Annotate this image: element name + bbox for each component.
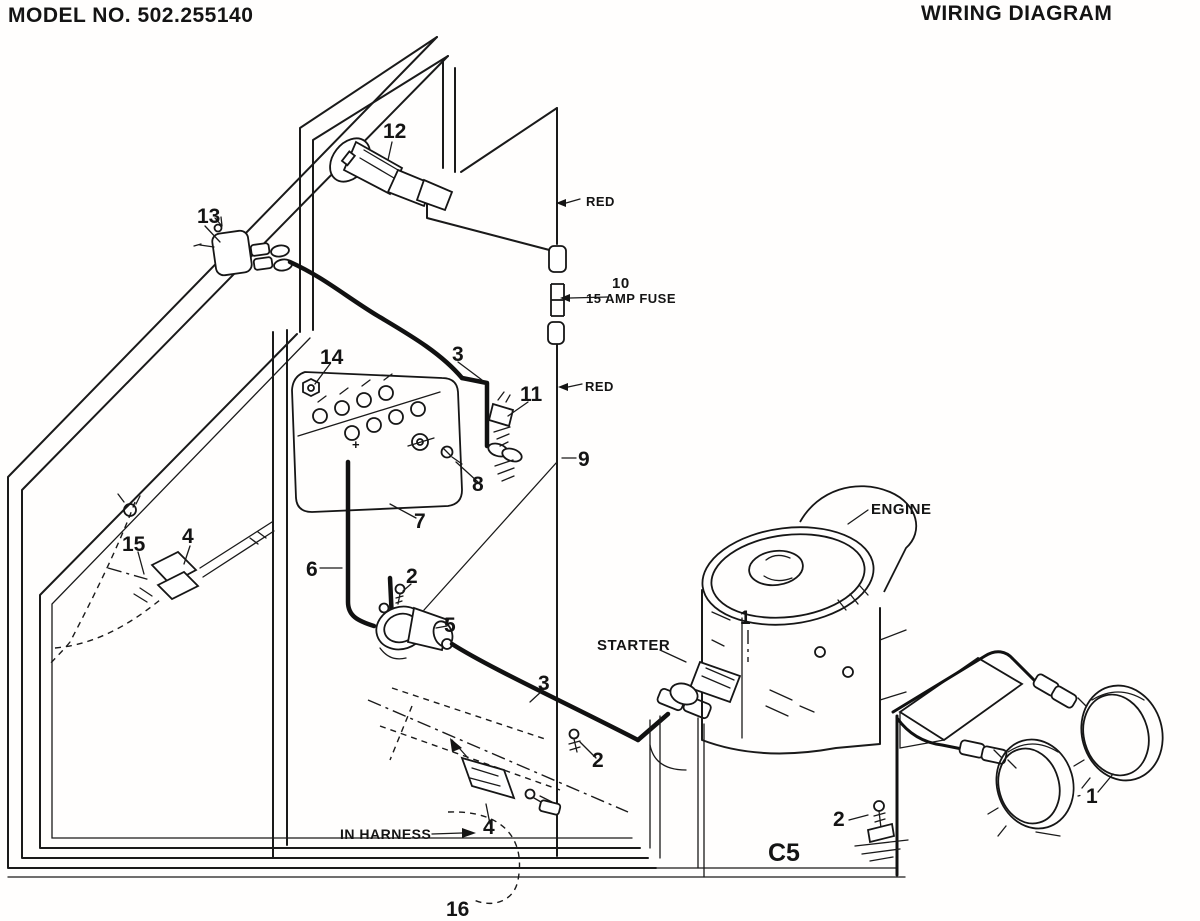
callout-4-interlock-bottom: 4: [483, 816, 495, 839]
wire-label-red-upper: RED: [586, 194, 615, 209]
solenoid: [371, 600, 456, 659]
screw-2-bottom: [569, 730, 580, 753]
callout-2-ground-screw: 2: [833, 808, 845, 831]
connector-c5-label: C5: [768, 839, 800, 867]
callout-13-light-switch: 13: [197, 205, 220, 228]
callout-12-key-switch: 12: [383, 120, 406, 143]
wiring-diagram-page: MODEL NO. 502.255140 WIRING DIAGRAM 12 1…: [0, 0, 1200, 921]
diagram-canvas: MODEL NO. 502.255140 WIRING DIAGRAM 12 1…: [0, 0, 1200, 921]
callout-3-starter-cable: 3: [538, 672, 550, 695]
callout-15-interlock: 15: [122, 533, 146, 556]
wire-label-red-lower: RED: [585, 379, 614, 394]
ground-bolt-8: [442, 447, 463, 465]
in-harness-label: IN HARNESS: [340, 826, 431, 842]
page-title: WIRING DIAGRAM: [921, 2, 1112, 25]
callout-7-battery: 7: [414, 510, 426, 533]
callout-3-battery-cable: 3: [452, 343, 464, 366]
callout-1-starter-area: 1: [740, 608, 751, 629]
screw-2-solenoid: [396, 585, 405, 605]
callout-14-nut: 14: [320, 346, 344, 369]
engine-label: ENGINE: [871, 501, 932, 518]
fuse-rating-label: 15 AMP FUSE: [586, 291, 676, 306]
callout-9-wire: 9: [578, 448, 590, 471]
ground-screw-2-right: [855, 801, 908, 861]
engine: [697, 486, 916, 753]
starter-label: STARTER: [597, 637, 670, 654]
wire-6: [348, 462, 557, 626]
callout-2-interlock-screw: 2: [592, 749, 604, 772]
callout-2-solenoid-screw: 2: [406, 565, 418, 588]
chassis-outline: [8, 37, 905, 877]
callout-8-bolt: 8: [472, 473, 484, 496]
harness-risers: [650, 716, 704, 877]
callout-1-headlight: 1: [1086, 785, 1098, 808]
callout-5-solenoid: 5: [444, 614, 456, 637]
battery-positive-mark: +: [352, 437, 360, 452]
fuse: [548, 246, 566, 344]
callout-11-ground-wire: 11: [520, 383, 543, 406]
callout-10-fuse: 10: [612, 275, 630, 292]
model-number: MODEL NO. 502.255140: [8, 4, 253, 27]
callout-6-wire: 6: [306, 558, 318, 581]
callout-16-harness: 16: [446, 898, 469, 921]
headlights: [986, 676, 1174, 838]
interlock-switch-left: [50, 494, 274, 664]
battery-cable-3: [462, 378, 523, 481]
callout-4-interlock-left: 4: [182, 525, 194, 548]
ground-terminal-11: [489, 392, 513, 446]
